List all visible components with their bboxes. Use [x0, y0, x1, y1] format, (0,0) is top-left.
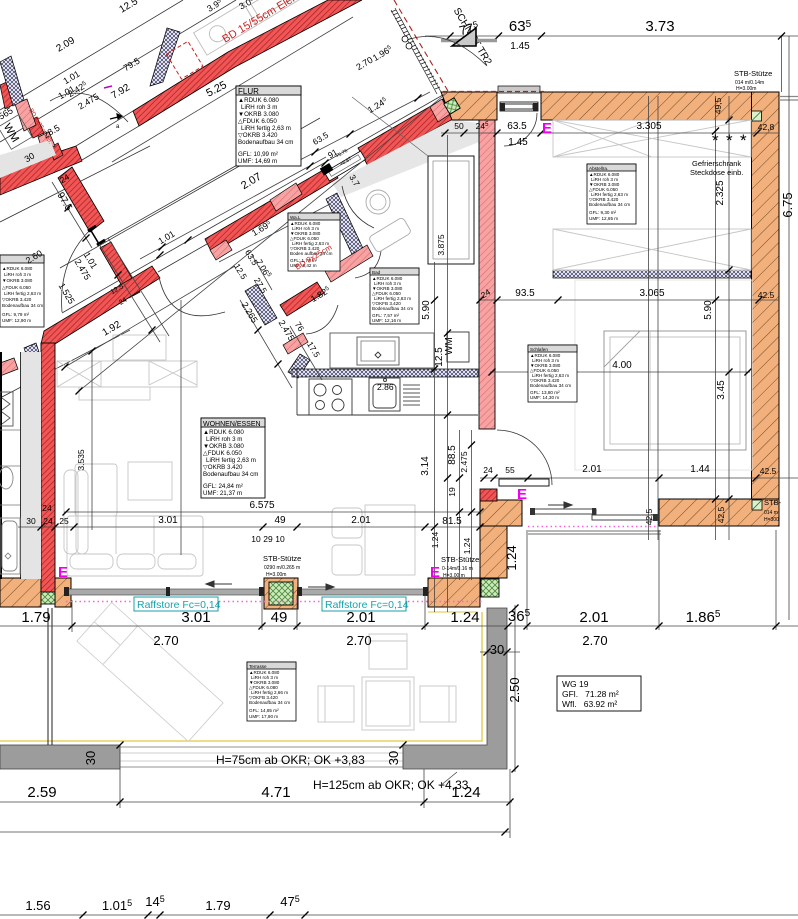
- svg-text:UMF: 12,90 m: UMF: 12,90 m: [2, 318, 31, 323]
- svg-text:STB-: STB-: [764, 498, 782, 507]
- svg-text:2.325: 2.325: [715, 180, 726, 205]
- svg-text:42.5: 42.5: [758, 290, 775, 300]
- svg-text:Wfl. 63.92 m²: Wfl. 63.92 m²: [562, 699, 617, 709]
- svg-text:▲RDUK 6.080: ▲RDUK 6.080: [2, 266, 33, 271]
- svg-text:1.56: 1.56: [25, 898, 50, 913]
- svg-text:42,8: 42,8: [758, 122, 775, 132]
- svg-text:Bodenaufbau 34 cm: Bodenaufbau 34 cm: [249, 700, 290, 705]
- svg-text:▽OKRB 3.420: ▽OKRB 3.420: [2, 297, 32, 302]
- svg-text:LiRH fertig 2,63 m: LiRH fertig 2,63 m: [241, 125, 291, 132]
- svg-text:LiRH fertig 2,63 m: LiRH fertig 2,63 m: [4, 291, 41, 296]
- svg-text:12.5: 12.5: [434, 347, 445, 367]
- svg-text:GFL: 10,99 m²: GFL: 10,99 m²: [238, 151, 278, 158]
- svg-text:55: 55: [505, 465, 515, 475]
- svg-text:△FDUK 6.050: △FDUK 6.050: [203, 450, 242, 457]
- svg-text:3.14: 3.14: [420, 456, 431, 476]
- svg-text:E: E: [542, 120, 552, 137]
- svg-text:Steckdose einb.: Steckdose einb.: [690, 168, 743, 177]
- svg-text:UMF: 12,16 m: UMF: 12,16 m: [372, 318, 401, 323]
- svg-text:5.90: 5.90: [703, 300, 714, 320]
- svg-text:49: 49: [274, 515, 286, 526]
- svg-text:1.24: 1.24: [450, 609, 479, 626]
- svg-text:GFl. 71.28 m²: GFl. 71.28 m²: [562, 689, 619, 699]
- svg-text:Gefrierschrank: Gefrierschrank: [692, 159, 741, 168]
- svg-text:4.71: 4.71: [261, 784, 290, 801]
- svg-text:2.70: 2.70: [582, 633, 607, 648]
- svg-text:1.79: 1.79: [21, 609, 50, 626]
- svg-text:2.70: 2.70: [346, 633, 371, 648]
- svg-text:UMF: 17,90 m: UMF: 17,90 m: [249, 714, 278, 719]
- svg-text:49,5: 49,5: [713, 97, 723, 114]
- svg-text:2.70: 2.70: [153, 633, 178, 648]
- svg-text:1.44: 1.44: [690, 464, 710, 475]
- svg-text:GFL: 9,30 m²: GFL: 9,30 m²: [589, 210, 617, 215]
- svg-text:E: E: [517, 486, 527, 503]
- svg-text:30: 30: [386, 751, 401, 765]
- svg-text:3.875: 3.875: [436, 234, 446, 256]
- svg-text:30: 30: [83, 751, 98, 765]
- svg-text:WM: WM: [444, 337, 455, 355]
- svg-text:△FDUK 6.050: △FDUK 6.050: [2, 285, 31, 290]
- svg-text:▼OKRB 3.080: ▼OKRB 3.080: [2, 278, 33, 283]
- svg-text:3.535: 3.535: [76, 449, 86, 471]
- svg-text:WG 19: WG 19: [562, 679, 589, 689]
- svg-text:3.01: 3.01: [158, 515, 178, 526]
- svg-text:Abstellra.: Abstellra.: [589, 166, 608, 171]
- svg-text:50: 50: [454, 121, 464, 131]
- svg-text:3.45: 3.45: [716, 380, 727, 400]
- svg-text:Wa.L: Wa.L: [290, 215, 301, 220]
- svg-text:LiRH fertig 2,63 m: LiRH fertig 2,63 m: [206, 457, 256, 464]
- svg-text:2.50: 2.50: [507, 677, 522, 702]
- svg-text:LiRH roh 3 m: LiRH roh 3 m: [241, 104, 277, 111]
- svg-text:2.01: 2.01: [351, 515, 371, 526]
- svg-text:29: 29: [263, 534, 273, 544]
- svg-text:H=3.00m: H=3.00m: [736, 86, 756, 92]
- svg-text:3.73: 3.73: [645, 18, 674, 35]
- svg-text:LiRH roh 3 m: LiRH roh 3 m: [206, 436, 242, 443]
- svg-text:Bodenaufbau 34 cm: Bodenaufbau 34 cm: [530, 383, 571, 388]
- svg-text:5.90: 5.90: [421, 300, 432, 320]
- svg-text:2.86: 2.86: [377, 382, 394, 392]
- svg-text:H=3.00 m: H=3.00 m: [443, 573, 465, 579]
- svg-text:E: E: [58, 564, 68, 581]
- svg-text:3.305: 3.305: [636, 121, 661, 132]
- svg-text:2.01: 2.01: [582, 464, 602, 475]
- svg-text:H=125cm ab OKR; OK +4,33: H=125cm ab OKR; OK +4,33: [313, 778, 469, 792]
- svg-text:UMF: 14,30 m: UMF: 14,30 m: [530, 395, 559, 400]
- svg-text:GFL: 24,84 m²: GFL: 24,84 m²: [203, 483, 243, 490]
- svg-text:Bad: Bad: [372, 270, 381, 275]
- svg-text:1.24: 1.24: [430, 531, 440, 548]
- svg-text:6.575: 6.575: [249, 500, 274, 511]
- svg-text:E: E: [430, 564, 440, 581]
- svg-text:4.00: 4.00: [612, 360, 632, 371]
- svg-text:2.475: 2.475: [459, 451, 469, 473]
- svg-text:▲RDUK 6.080: ▲RDUK 6.080: [238, 97, 279, 104]
- svg-text:24: 24: [43, 516, 53, 526]
- svg-text:▽OKRB 3.420: ▽OKRB 3.420: [238, 132, 278, 139]
- svg-text:H=3.00m: H=3.00m: [266, 572, 286, 578]
- svg-text:10: 10: [275, 534, 285, 544]
- svg-text:93.5: 93.5: [515, 288, 535, 299]
- svg-text:H=300: H=300: [764, 517, 779, 523]
- svg-text:▼OKRB 3.080: ▼OKRB 3.080: [238, 111, 279, 118]
- svg-text:2.01: 2.01: [579, 609, 608, 626]
- svg-text:1.45: 1.45: [508, 137, 528, 148]
- svg-text:*: *: [740, 131, 747, 150]
- svg-text:Terrasse: Terrasse: [249, 664, 267, 669]
- svg-text:STB-Stütze: STB-Stütze: [263, 554, 301, 563]
- svg-text:Raffstore Fc=0,14: Raffstore Fc=0,14: [137, 599, 221, 611]
- svg-text:▽OKRB 3.420: ▽OKRB 3.420: [203, 464, 243, 471]
- svg-text:1.45: 1.45: [510, 41, 530, 52]
- svg-text:88.5: 88.5: [447, 445, 458, 465]
- svg-text:▲RDUK 6.080: ▲RDUK 6.080: [203, 429, 244, 436]
- svg-text:Raffstore Fc=0,14: Raffstore Fc=0,14: [325, 599, 409, 611]
- svg-text:LiRH roh 3 m: LiRH roh 3 m: [4, 272, 31, 277]
- svg-text:△FDUK 6.050: △FDUK 6.050: [238, 118, 277, 125]
- svg-text:FLUR: FLUR: [238, 87, 259, 96]
- svg-text:Bodenaufbau 34 cm: Bodenaufbau 34 cm: [203, 471, 258, 478]
- svg-text:25: 25: [59, 516, 69, 526]
- svg-text:STB-Stütze: STB-Stütze: [441, 555, 479, 564]
- svg-text:GFL: 14,85 m²: GFL: 14,85 m²: [249, 708, 279, 713]
- svg-text:Bodenaufbau 34 cm: Bodenaufbau 34 cm: [238, 139, 293, 146]
- svg-text:Bodenaufbau 34 cm: Bodenaufbau 34 cm: [372, 306, 413, 311]
- svg-text:49: 49: [271, 609, 288, 626]
- svg-text:2.01: 2.01: [346, 609, 375, 626]
- svg-text:30: 30: [490, 642, 504, 657]
- svg-text:0-14m/0.16 m: 0-14m/0.16 m: [442, 566, 473, 572]
- svg-text:Bodenaufbau 34 cm: Bodenaufbau 34 cm: [2, 303, 43, 308]
- svg-text:014 m: 014 m: [764, 510, 778, 516]
- svg-text:3.01: 3.01: [181, 609, 210, 626]
- svg-text:10: 10: [251, 534, 261, 544]
- svg-text:30: 30: [26, 516, 36, 526]
- svg-text:81.5: 81.5: [442, 516, 462, 527]
- svg-text:WOHNEN/ESSEN: WOHNEN/ESSEN: [203, 421, 261, 428]
- svg-text:19: 19: [447, 487, 457, 497]
- svg-text:42,5: 42,5: [644, 508, 654, 525]
- svg-text:2.59: 2.59: [27, 784, 56, 801]
- svg-text:Bodenaufbau 34 cm: Bodenaufbau 34 cm: [589, 202, 630, 207]
- svg-text:42,5: 42,5: [716, 506, 726, 523]
- svg-text:24: 24: [42, 503, 52, 513]
- svg-text:24: 24: [483, 465, 493, 475]
- svg-text:STB-Stütze: STB-Stütze: [734, 69, 772, 78]
- svg-text:Schlafen: Schlafen: [530, 347, 548, 352]
- svg-text:GFL: 9,79 m²: GFL: 9,79 m²: [2, 312, 30, 317]
- svg-text:*: *: [726, 131, 733, 150]
- svg-text:UMF: 21,37 m: UMF: 21,37 m: [203, 490, 242, 497]
- svg-text:1.24: 1.24: [462, 537, 472, 554]
- svg-text:▼OKRB 3.080: ▼OKRB 3.080: [203, 443, 244, 450]
- svg-text:UMF: 12,65 m: UMF: 12,65 m: [589, 216, 618, 221]
- svg-text:*: *: [712, 131, 719, 150]
- svg-text:6.75: 6.75: [780, 192, 795, 217]
- svg-text:H=75cm ab OKR; OK +3,83: H=75cm ab OKR; OK +3,83: [216, 753, 365, 767]
- svg-text:3.065: 3.065: [639, 288, 664, 299]
- svg-text:1.24: 1.24: [504, 545, 519, 570]
- svg-text:1.79: 1.79: [205, 898, 230, 913]
- svg-text:63.5: 63.5: [507, 121, 527, 132]
- svg-text:0290 m/0.265 m: 0290 m/0.265 m: [264, 565, 300, 571]
- svg-text:UMF: 14,69 m: UMF: 14,69 m: [238, 158, 277, 165]
- svg-text:42.5: 42.5: [760, 466, 777, 476]
